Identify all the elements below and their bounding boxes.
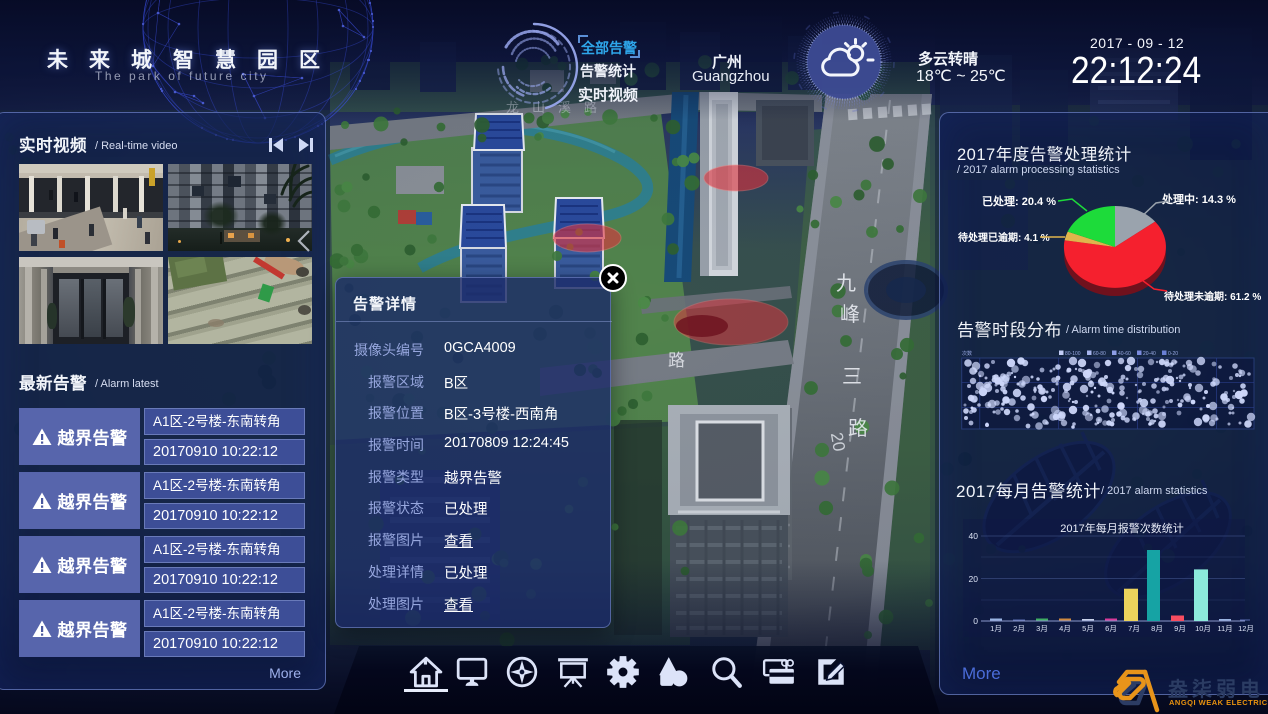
svg-text:6月: 6月 xyxy=(1105,624,1117,633)
svg-text:80-100: 80-100 xyxy=(1065,351,1081,357)
svg-text:0-20: 0-20 xyxy=(1168,351,1178,357)
svg-text:20-40: 20-40 xyxy=(1143,351,1156,357)
svg-text:9月: 9月 xyxy=(1174,624,1186,633)
svg-text:40-60: 40-60 xyxy=(1118,351,1131,357)
svg-text:40: 40 xyxy=(969,531,979,541)
svg-text:0: 0 xyxy=(973,616,978,626)
svg-text:2017年每月报警次数统计: 2017年每月报警次数统计 xyxy=(1060,521,1183,535)
svg-text:8月: 8月 xyxy=(1151,624,1163,633)
svg-text:4月: 4月 xyxy=(1059,624,1071,633)
svg-text:5月: 5月 xyxy=(1082,624,1094,633)
svg-text:7月: 7月 xyxy=(1128,624,1140,633)
svg-text:1月: 1月 xyxy=(990,624,1002,633)
svg-text:10月: 10月 xyxy=(1195,624,1211,633)
svg-text:2月: 2月 xyxy=(1013,624,1025,633)
svg-text:12月: 12月 xyxy=(1238,624,1253,633)
svg-text:次数: 次数 xyxy=(962,350,972,357)
svg-text:3月: 3月 xyxy=(1036,624,1048,633)
svg-text:20: 20 xyxy=(969,574,979,584)
svg-text:60-80: 60-80 xyxy=(1093,351,1106,357)
svg-text:11月: 11月 xyxy=(1217,624,1232,633)
